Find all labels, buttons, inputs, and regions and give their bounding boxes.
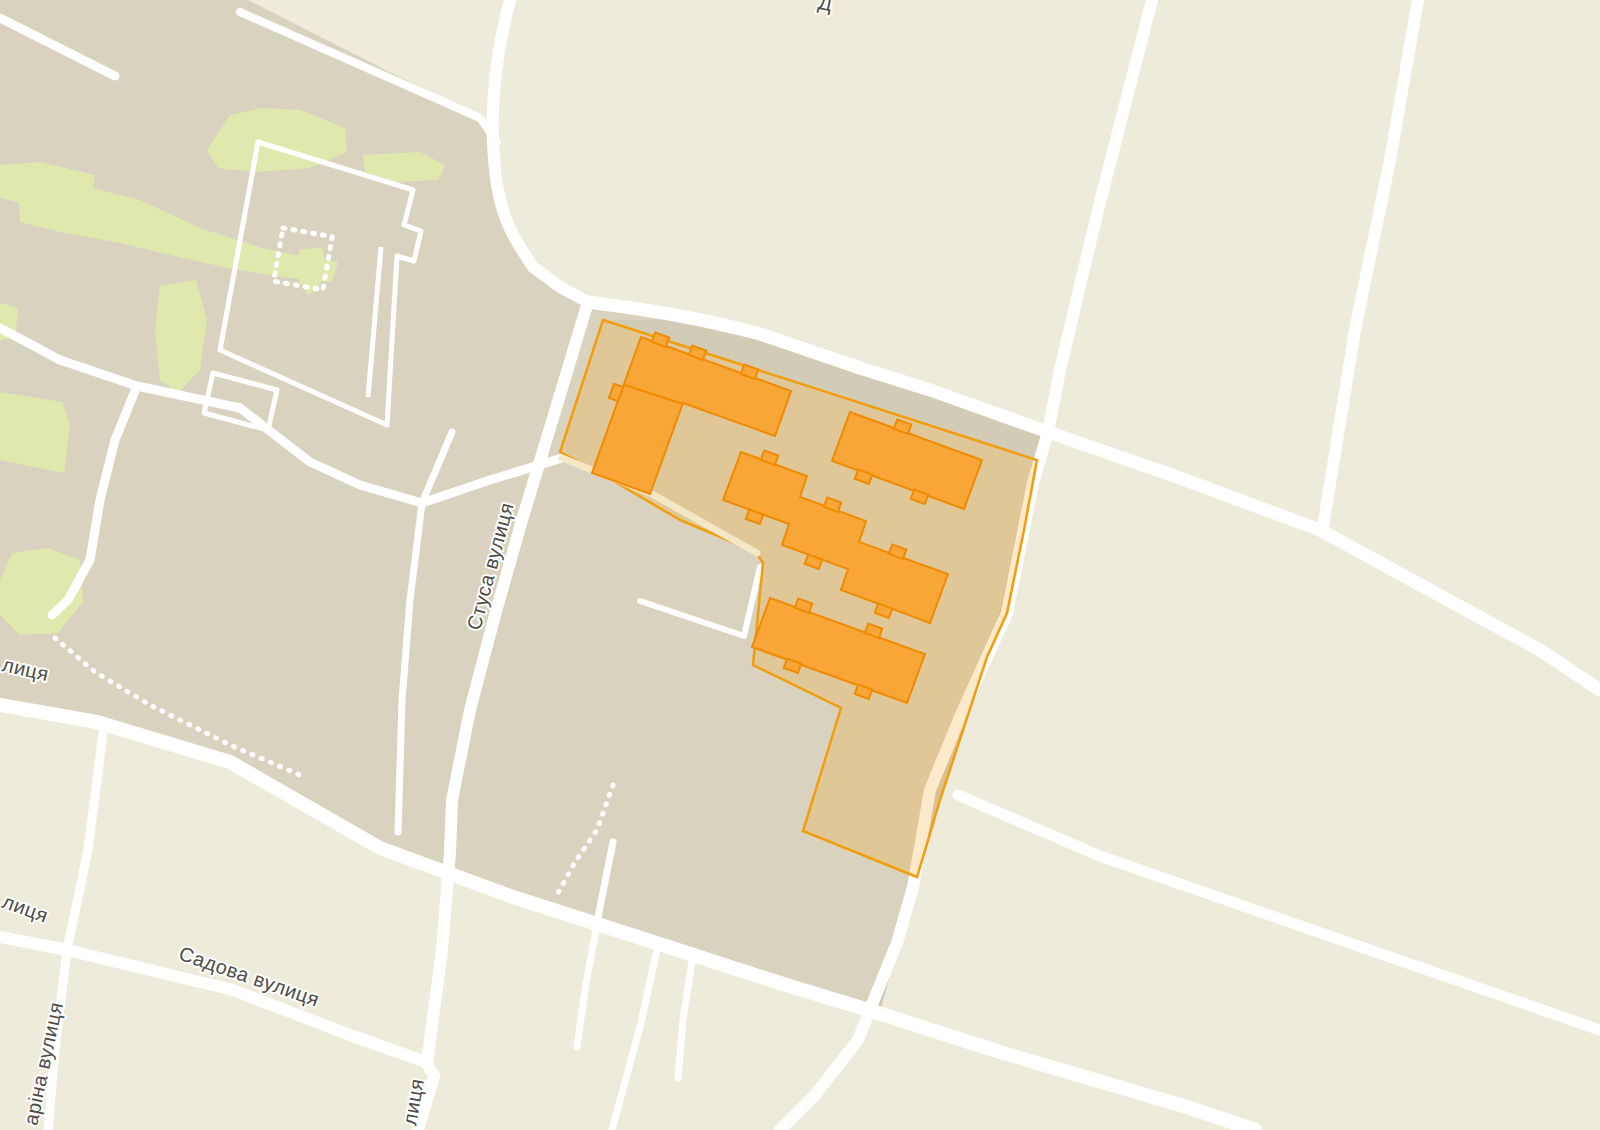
park-blob — [0, 392, 70, 473]
map-canvas[interactable]: Стуса вулиця Садова вулиця лиця лиця арі… — [0, 0, 1600, 1130]
map-viewport[interactable]: Стуса вулиця Садова вулиця лиця лиця арі… — [0, 0, 1600, 1130]
